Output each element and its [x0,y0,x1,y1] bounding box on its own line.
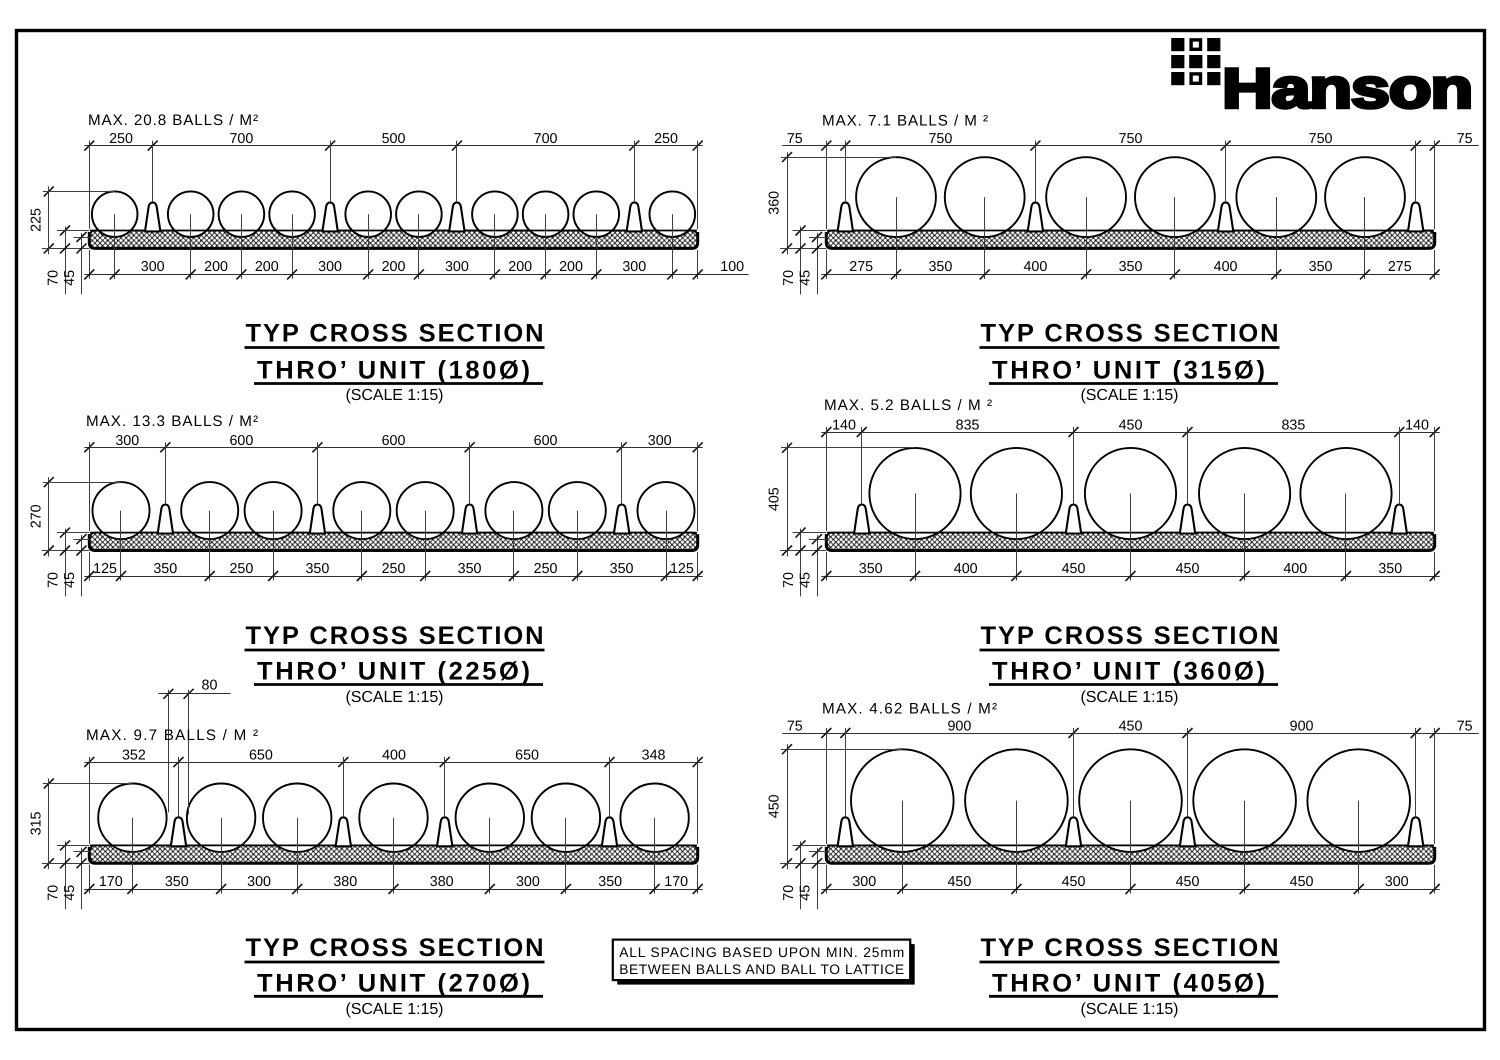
svg-text:140: 140 [1405,418,1429,434]
svg-text:250: 250 [654,131,678,147]
svg-text:275: 275 [1388,259,1412,275]
svg-text:300: 300 [516,874,540,890]
svg-text:125: 125 [670,561,694,577]
svg-text:THRO’ UNIT (270Ø): THRO’ UNIT (270Ø) [257,969,530,997]
svg-text:250: 250 [534,561,558,577]
svg-text:THRO’ UNIT (405Ø): THRO’ UNIT (405Ø) [992,969,1265,997]
svg-text:170: 170 [99,874,123,890]
svg-text:200: 200 [382,259,406,275]
svg-text:45: 45 [798,270,814,286]
svg-text:MAX. 20.8 BALLS / M²: MAX. 20.8 BALLS / M² [88,112,258,129]
svg-text:350: 350 [610,561,634,577]
svg-text:250: 250 [109,131,133,147]
svg-text:125: 125 [93,561,117,577]
svg-text:75: 75 [1457,131,1473,147]
svg-text:BETWEEN BALLS AND BALL TO: BETWEEN BALLS AND BALL TO LATTICE [619,962,904,977]
svg-text:200: 200 [255,259,279,275]
svg-text:450: 450 [1119,418,1143,434]
svg-text:250: 250 [382,561,406,577]
svg-text:MAX. 7.1 BALLS / M ²: MAX. 7.1 BALLS / M ² [822,113,988,130]
svg-text:400: 400 [954,561,978,577]
svg-text:TYP CROSS SECTION: TYP CROSS SECTION [246,934,544,962]
svg-text:Hanson: Hanson [1222,57,1472,120]
svg-text:315: 315 [28,811,44,835]
svg-text:250: 250 [229,561,253,577]
svg-text:(SCALE 1:15): (SCALE 1:15) [346,1001,444,1018]
svg-text:900: 900 [1290,719,1314,735]
svg-text:80: 80 [202,677,218,693]
svg-text:405: 405 [767,487,783,511]
svg-text:(SCALE 1:15): (SCALE 1:15) [1081,689,1179,706]
svg-text:350: 350 [165,874,189,890]
svg-text:400: 400 [1283,561,1307,577]
svg-text:70: 70 [46,885,62,901]
svg-text:750: 750 [1309,131,1333,147]
svg-text:45: 45 [62,572,78,588]
svg-text:700: 700 [229,131,253,147]
svg-text:350: 350 [1119,259,1143,275]
svg-text:45: 45 [798,885,814,901]
svg-text:450: 450 [1290,874,1314,890]
svg-text:70: 70 [781,885,797,901]
svg-text:TYP CROSS SECTION: TYP CROSS SECTION [981,934,1279,962]
svg-text:300: 300 [247,874,271,890]
svg-text:350: 350 [598,874,622,890]
svg-text:TYP CROSS SECTION: TYP CROSS SECTION [981,622,1279,650]
svg-text:835: 835 [1281,418,1305,434]
svg-text:MAX. 4.62 BALLS / M²: MAX. 4.62 BALLS / M² [822,701,997,718]
svg-text:750: 750 [1119,131,1143,147]
svg-text:TYP CROSS SECTION: TYP CROSS SECTION [246,320,544,348]
svg-text:170: 170 [664,874,688,890]
svg-text:600: 600 [534,433,558,449]
svg-text:450: 450 [1119,719,1143,735]
svg-text:THRO’ UNIT (225Ø): THRO’ UNIT (225Ø) [257,658,530,686]
svg-text:THRO’ UNIT (180Ø): THRO’ UNIT (180Ø) [257,357,530,385]
svg-text:450: 450 [1176,561,1200,577]
svg-text:(SCALE 1:15): (SCALE 1:15) [346,689,444,706]
svg-text:360: 360 [767,191,783,215]
svg-text:600: 600 [382,433,406,449]
svg-text:300: 300 [622,259,646,275]
svg-text:TYP CROSS SECTION: TYP CROSS SECTION [246,622,544,650]
svg-text:450: 450 [1176,874,1200,890]
svg-text:300: 300 [648,433,672,449]
svg-text:45: 45 [62,885,78,901]
svg-text:70: 70 [46,270,62,286]
svg-text:70: 70 [781,572,797,588]
svg-text:400: 400 [1023,259,1047,275]
svg-text:TYP CROSS SECTION: TYP CROSS SECTION [981,320,1279,348]
svg-text:300: 300 [852,874,876,890]
svg-text:352: 352 [122,748,146,764]
svg-text:270: 270 [28,504,44,528]
svg-text:350: 350 [458,561,482,577]
svg-text:MAX. 5.2 BALLS / M ²: MAX. 5.2 BALLS / M ² [824,397,992,414]
svg-text:300: 300 [445,259,469,275]
svg-text:200: 200 [508,259,532,275]
svg-text:400: 400 [1214,259,1238,275]
svg-text:THRO’ UNIT (360Ø): THRO’ UNIT (360Ø) [992,658,1265,686]
svg-text:350: 350 [928,259,952,275]
svg-text:348: 348 [642,748,666,764]
svg-text:900: 900 [947,719,971,735]
svg-text:200: 200 [559,259,583,275]
svg-text:300: 300 [318,259,342,275]
svg-text:400: 400 [382,748,406,764]
svg-text:300: 300 [1385,874,1409,890]
svg-text:450: 450 [1062,561,1086,577]
svg-text:THRO’ UNIT (315Ø): THRO’ UNIT (315Ø) [992,357,1265,385]
svg-text:75: 75 [787,131,803,147]
svg-text:70: 70 [781,270,797,286]
svg-text:MAX. 9.7 BALLS / M ²: MAX. 9.7 BALLS / M ² [86,727,258,744]
svg-text:75: 75 [1457,719,1473,735]
svg-text:ALL SPACING BASED UPON MIN: ALL SPACING BASED UPON MIN. 25mm [619,945,904,960]
svg-text:(SCALE 1:15): (SCALE 1:15) [1081,1001,1179,1018]
svg-text:350: 350 [153,561,177,577]
svg-text:650: 650 [249,748,273,764]
svg-text:600: 600 [229,433,253,449]
svg-text:835: 835 [956,418,980,434]
svg-text:200: 200 [204,259,228,275]
svg-text:140: 140 [832,418,856,434]
svg-text:300: 300 [141,259,165,275]
svg-text:450: 450 [767,794,783,818]
svg-text:75: 75 [787,719,803,735]
svg-text:500: 500 [382,131,406,147]
svg-text:350: 350 [1378,561,1402,577]
svg-text:(SCALE 1:15): (SCALE 1:15) [1081,387,1179,404]
svg-text:450: 450 [947,874,971,890]
svg-text:MAX. 13.3 BALLS / M²: MAX. 13.3 BALLS / M² [86,413,258,430]
svg-text:350: 350 [1309,259,1333,275]
svg-text:225: 225 [28,208,44,232]
svg-text:45: 45 [62,270,78,286]
svg-text:750: 750 [928,131,952,147]
svg-text:350: 350 [859,561,883,577]
svg-text:70: 70 [46,572,62,588]
svg-text:700: 700 [534,131,558,147]
svg-text:100: 100 [720,259,744,275]
svg-text:380: 380 [430,874,454,890]
svg-text:350: 350 [305,561,329,577]
svg-text:300: 300 [115,433,139,449]
svg-text:450: 450 [1062,874,1086,890]
svg-text:45: 45 [798,572,814,588]
svg-text:(SCALE 1:15): (SCALE 1:15) [346,387,444,404]
svg-text:650: 650 [515,748,539,764]
svg-text:380: 380 [333,874,357,890]
svg-text:275: 275 [849,259,873,275]
